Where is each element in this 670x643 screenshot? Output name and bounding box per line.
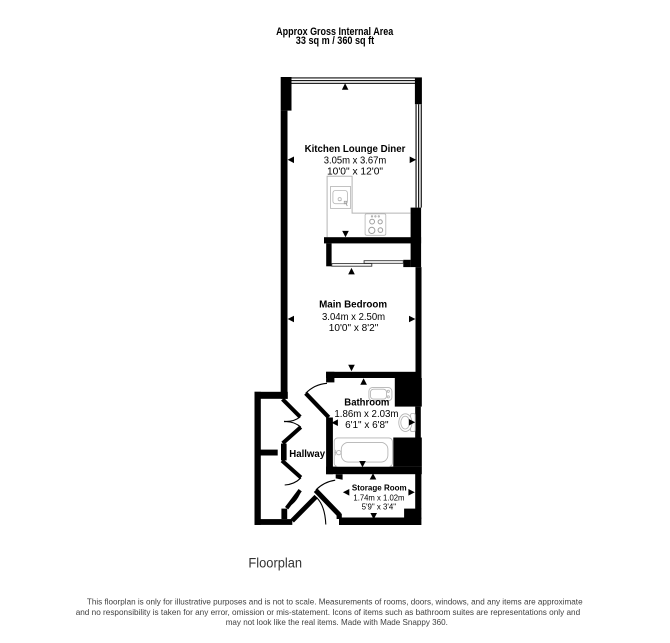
svg-text:and no responsibility is taken: and no responsibility is taken for any e… — [76, 607, 581, 617]
svg-text:33 sq m / 360 sq ft: 33 sq m / 360 sq ft — [296, 35, 375, 47]
svg-text:Main Bedroom: Main Bedroom — [319, 300, 387, 311]
svg-text:Kitchen Lounge Diner: Kitchen Lounge Diner — [305, 144, 406, 155]
svg-text:Storage Room: Storage Room — [352, 483, 407, 493]
svg-text:10'0" x 8'2": 10'0" x 8'2" — [329, 323, 379, 334]
svg-text:6'1" x 6'8": 6'1" x 6'8" — [345, 420, 389, 431]
svg-text:5'9" x 3'4": 5'9" x 3'4" — [362, 501, 397, 511]
svg-text:may not look like the real ite: may not look like the real items. Made w… — [226, 617, 448, 627]
svg-text:1.86m x 2.03m: 1.86m x 2.03m — [334, 409, 398, 420]
svg-text:Bathroom: Bathroom — [344, 398, 389, 409]
svg-text:Floorplan: Floorplan — [248, 554, 302, 570]
svg-text:3.04m x 2.50m: 3.04m x 2.50m — [322, 312, 385, 323]
svg-text:This floorplan is only for ill: This floorplan is only for illustrative … — [87, 596, 583, 606]
svg-text:Hallway: Hallway — [289, 449, 325, 460]
svg-text:3.05m x 3.67m: 3.05m x 3.67m — [324, 156, 387, 167]
